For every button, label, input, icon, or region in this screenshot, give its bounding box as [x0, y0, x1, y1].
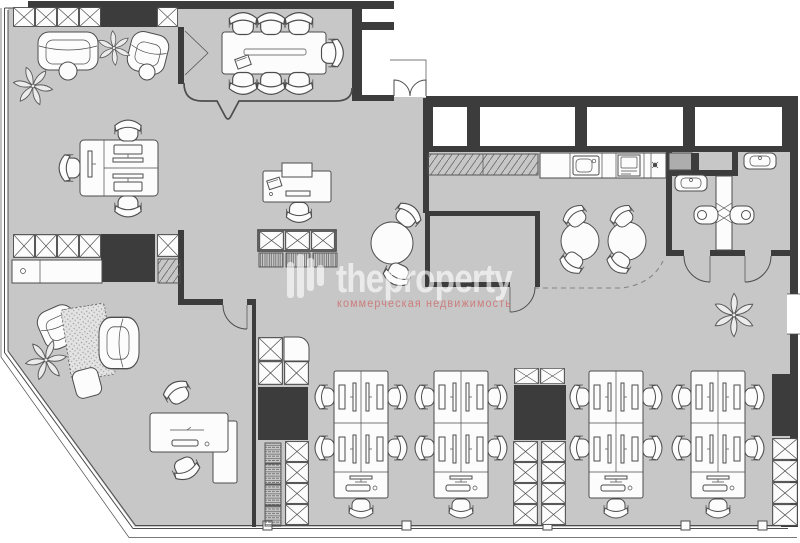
storage-xbox-icon [312, 232, 335, 250]
armchair-icon [99, 317, 139, 368]
storage-xbox-icon [80, 235, 101, 258]
storage-xbox-icon [36, 235, 57, 258]
storage-xbox-icon [773, 439, 798, 460]
office-chair-icon [285, 73, 313, 95]
storage-xbox-icon [36, 8, 57, 27]
entrance-doors [390, 60, 426, 96]
sink-icon [675, 173, 707, 191]
bookshelf-icon [265, 485, 281, 505]
stove-icon [618, 155, 640, 176]
watermark-subtitle: коммерческая недвижимость [337, 298, 512, 310]
monitor-icon [282, 163, 312, 177]
office-chair-icon [115, 196, 141, 217]
storage-xbox-icon [773, 505, 798, 526]
monitor-icon [113, 174, 143, 178]
office-chair-icon [285, 13, 313, 35]
storage-xbox-icon [285, 362, 309, 385]
storage-xbox-icon [158, 8, 178, 27]
right-wall-opening [787, 294, 800, 334]
storage-xbox-icon [286, 484, 309, 504]
office-chair-icon [229, 13, 257, 35]
floor-plan-canvas: theproperty коммерческая недвижимость [0, 0, 800, 543]
shaft [669, 153, 692, 170]
storage-xbox-icon [542, 484, 566, 504]
storage-xbox-icon [80, 8, 101, 27]
office-chair-icon [257, 73, 285, 95]
watermark-brand: theproperty [336, 257, 513, 301]
pouf-icon [59, 62, 77, 80]
storage-xbox-icon [58, 8, 79, 27]
storage-xbox-icon [773, 483, 798, 504]
storage-xbox-icon [259, 362, 283, 385]
storage-xbox-icon [286, 463, 309, 483]
storage-xbox-icon [58, 235, 79, 258]
toilet-icon [694, 206, 718, 224]
sink-icon [744, 151, 776, 169]
bookshelf-icon [259, 253, 283, 267]
keyboard-icon [172, 440, 198, 446]
office-chair-icon [229, 73, 257, 95]
storage-xbox-icon [259, 338, 283, 361]
storage-xbox-icon [514, 442, 538, 462]
monitor-icon [113, 158, 143, 162]
storage-xbox-icon [14, 8, 35, 27]
coat-rack-icon [158, 259, 180, 283]
floor-plan-page: theproperty коммерческая недвижимость [0, 0, 800, 543]
storage-xbox-icon [542, 442, 566, 462]
rounded-cabinet [284, 337, 309, 361]
storage-xbox-icon [773, 461, 798, 482]
window-icon [695, 107, 782, 146]
bookshelf-icon [265, 506, 281, 526]
storage-xbox-icon [541, 368, 565, 383]
door-swing-icon [394, 80, 426, 96]
bookshelf-icon [265, 464, 281, 484]
storage-xbox-icon [542, 505, 566, 525]
storage-xbox-icon [158, 235, 179, 257]
sink-icon [573, 156, 599, 175]
storage-xbox-icon [286, 442, 309, 462]
window-icon [587, 107, 683, 146]
bookshelf-icon [265, 443, 281, 463]
office-chair-icon [59, 155, 80, 181]
storage-xbox-icon [515, 368, 539, 383]
bookshelf-icon [313, 253, 337, 267]
storage-xbox-icon [514, 463, 538, 483]
storage-xbox-icon [286, 505, 309, 525]
storage-xbox-icon [514, 505, 538, 525]
burner-icon [652, 162, 658, 168]
monitor-icon [88, 151, 92, 177]
office-chair-icon [115, 120, 141, 141]
window-icon [480, 107, 575, 146]
office-chair-icon [286, 203, 311, 223]
window-icon [433, 107, 467, 146]
pouf-icon [139, 64, 155, 80]
storage-xbox-icon [260, 232, 284, 250]
storage-xbox-icon [514, 484, 538, 504]
toilet-icon [730, 206, 754, 224]
storage-xbox-icon [286, 232, 310, 250]
office-chair-icon [257, 13, 285, 35]
keyboard-icon [114, 145, 142, 154]
office-chair-icon [322, 39, 344, 67]
storage-xbox-icon [14, 235, 35, 258]
kitchen-counter [540, 153, 666, 178]
storage-xbox-icon [542, 463, 566, 483]
keyboard-icon [114, 182, 142, 191]
